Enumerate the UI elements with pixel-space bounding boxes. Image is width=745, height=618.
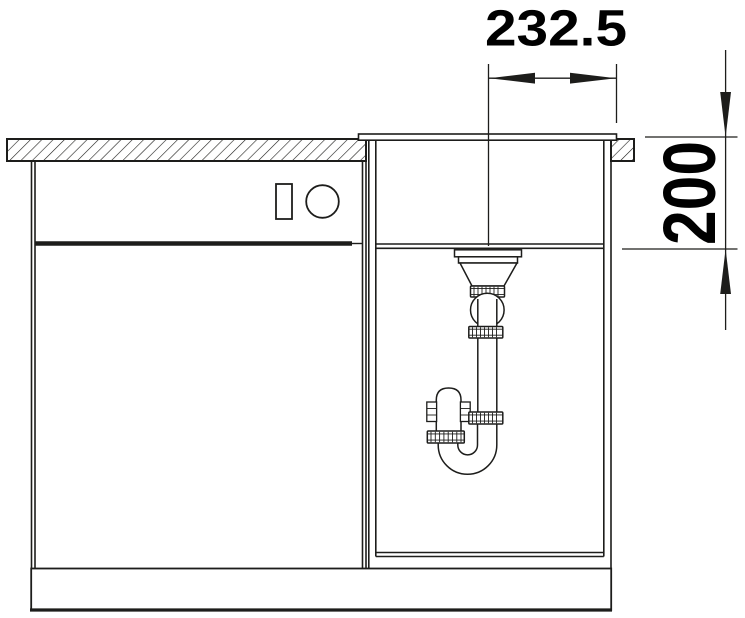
sink-rim: [359, 134, 617, 140]
sink-bowl: [359, 134, 617, 248]
plinth: [30, 569, 612, 611]
arrow-down-icon: [720, 92, 731, 137]
siphon-nut-c: [469, 412, 503, 424]
siphon-nut-d: [427, 431, 464, 443]
siphon-assembly: [427, 250, 522, 474]
siphon-nut-b: [469, 327, 503, 339]
siphon-pipe-fill: [478, 299, 497, 415]
plinth-band: [31, 569, 611, 611]
dimension-horizontal: 232.5: [485, 0, 627, 123]
countertop-right-section: [611, 139, 634, 161]
control-knob-circle: [306, 185, 339, 218]
drain-strainer-cup: [460, 263, 517, 286]
technical-drawing-svg: 232.5 200: [0, 0, 745, 618]
countertop: [7, 139, 634, 161]
dimension-vertical-label: 200: [648, 141, 731, 245]
control-display-rectangle: [276, 184, 292, 219]
siphon-inlet-dome: [436, 388, 461, 436]
drain-flange-top: [455, 250, 522, 257]
arrow-left-icon: [489, 73, 535, 84]
dimension-horizontal-label: 232.5: [485, 0, 627, 57]
siphon-side-connector-left: [427, 402, 437, 422]
installation-diagram: 232.5 200: [0, 0, 745, 618]
arrow-right-icon: [570, 73, 616, 84]
countertop-left-section: [7, 139, 366, 161]
arrow-up-icon: [720, 249, 731, 294]
dimension-vertical: 200: [622, 50, 738, 330]
drain-flange-mid: [459, 257, 518, 263]
left-cabinet: [32, 161, 367, 568]
